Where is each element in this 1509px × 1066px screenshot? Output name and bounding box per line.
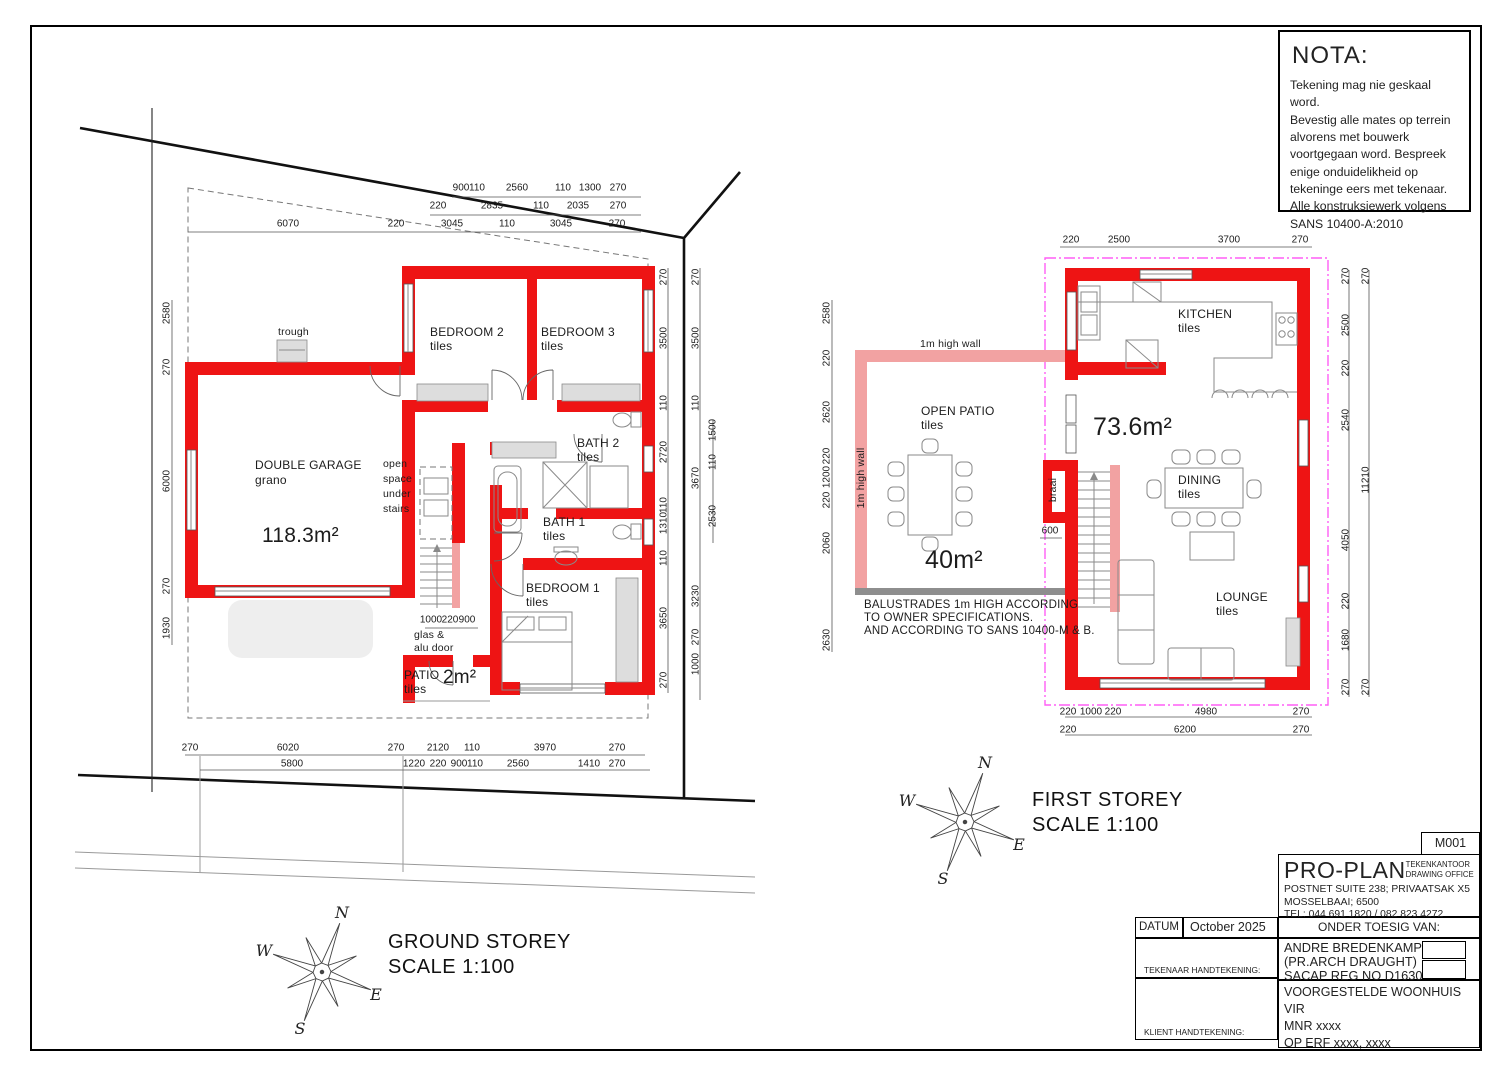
first-floor-plan xyxy=(832,247,1369,735)
dimension-label: 270 xyxy=(1292,235,1309,246)
plan-label: tiles xyxy=(1216,604,1238,618)
dimension-label: 270 xyxy=(1341,268,1352,285)
plan-label: tiles xyxy=(526,595,548,609)
compass-s: S xyxy=(295,1019,306,1038)
company-address1: POSTNET SUITE 238; PRIVAATSAK X5 xyxy=(1284,884,1474,897)
plan-label: OPEN PATIO xyxy=(921,404,995,418)
plan-label: tiles xyxy=(1178,487,1200,501)
architect-stamp-box-1 xyxy=(1422,941,1466,959)
ground-storey-title: GROUND STOREY SCALE 1:100 xyxy=(388,930,571,980)
plan-label: LOUNGE xyxy=(1216,590,1268,604)
nota-body: Tekening mag nie geskaal word.Bevestig a… xyxy=(1290,77,1459,233)
project-line2: MNR xxxx xyxy=(1284,1018,1474,1035)
vanity xyxy=(590,466,628,508)
plan-label: tiles xyxy=(430,339,452,353)
dimension-label: 270 xyxy=(1341,679,1352,696)
plan-label: BEDROOM 2 xyxy=(430,325,504,339)
first-storey-title-line2: SCALE 1:100 xyxy=(1032,813,1183,838)
client-signature-label: KLIENT HANDTEKENING: xyxy=(1144,1027,1244,1037)
dimension-label: 110 xyxy=(691,395,702,411)
plan-label: glas & xyxy=(414,629,444,641)
dimension-label: 2630 xyxy=(822,629,833,651)
plan-label: open xyxy=(383,458,407,470)
company-sub2: DRAWING OFFICE xyxy=(1406,870,1474,879)
plan-label: BEDROOM 3 xyxy=(541,325,615,339)
dimension-label: 2580 xyxy=(162,302,173,324)
client-signature-cell: KLIENT HANDTEKENING: xyxy=(1135,978,1278,1040)
dimension-label: 270 xyxy=(1293,707,1310,718)
dimension-label: 2530 xyxy=(708,505,719,527)
dimension-label: 2500 xyxy=(1341,314,1352,336)
compass-n: N xyxy=(334,903,350,922)
dimension-label: 3500 xyxy=(659,327,670,349)
dimension-label: 2035 xyxy=(567,201,589,212)
plan-label: BEDROOM 1 xyxy=(526,581,600,595)
dimension-label: 270 xyxy=(659,672,670,689)
dimension-label: 110 xyxy=(499,219,515,230)
dimension-label: 1200 xyxy=(822,466,833,488)
plan-label: TO OWNER SPECIFICATIONS. xyxy=(864,612,1033,624)
toilet-bath1 xyxy=(613,524,641,539)
dimension-label: 220 xyxy=(442,615,459,626)
dimension-label: 220 xyxy=(822,448,833,465)
architect-stamp-box-2 xyxy=(1422,960,1466,979)
compass-w: W xyxy=(256,941,274,960)
plan-label: tiles xyxy=(541,339,563,353)
dimension-label: 2560 xyxy=(506,183,528,194)
plan-label: under xyxy=(383,488,411,500)
datum-label: DATUM xyxy=(1135,917,1183,938)
dimension-label: 2580 xyxy=(822,302,833,324)
company-sub1: TEKENKANTOOR xyxy=(1406,860,1470,869)
garage-door xyxy=(215,587,390,596)
dimension-label: 2060 xyxy=(822,532,833,554)
dimension-label: 6070 xyxy=(277,219,299,230)
dimension-label: 110 xyxy=(659,550,670,566)
nota-box: NOTA: Tekening mag nie geskaal word.Beve… xyxy=(1278,30,1471,212)
plan-label: AND ACCORDING TO SANS 10400-M & B. xyxy=(864,625,1095,637)
patio-table xyxy=(888,439,972,551)
first-storey-title-line1: FIRST STOREY xyxy=(1032,788,1183,813)
dimension-label: 2620 xyxy=(822,401,833,423)
dimension-label: 220 xyxy=(1105,707,1122,718)
plan-label: 118.3m² xyxy=(262,524,339,548)
plan-label: grano xyxy=(255,473,287,487)
ground-staircase xyxy=(420,467,452,608)
hall-cupboard xyxy=(492,442,556,458)
plan-label: stairs xyxy=(383,503,409,515)
dimension-label: 110 xyxy=(533,201,549,212)
plan-label: space xyxy=(383,473,412,485)
dimension-label: 270 xyxy=(388,743,405,754)
dimension-label: 270 xyxy=(1361,679,1372,696)
compass-s: S xyxy=(938,869,949,888)
dimension-label: 2560 xyxy=(507,759,529,770)
dimension-label: 900 xyxy=(451,759,468,770)
datum-value: October 2025 xyxy=(1183,917,1278,938)
dimension-label: 1310 xyxy=(659,512,670,534)
plan-label: BATH 1 xyxy=(543,515,585,529)
drafter-signature-label: TEKENAAR HANDTEKENING: xyxy=(1144,965,1260,975)
ground-storey-title-line2: SCALE 1:100 xyxy=(388,955,571,980)
dimension-label: 220 xyxy=(1341,593,1352,610)
plan-label: DOUBLE GARAGE xyxy=(255,458,362,472)
dimension-label: 110 xyxy=(464,743,480,754)
dimension-label: 6000 xyxy=(162,470,173,492)
plan-label: alu door xyxy=(414,642,454,654)
ground-storey-title-line1: GROUND STOREY xyxy=(388,930,571,955)
dimension-label: 5800 xyxy=(281,759,303,770)
compass-e: E xyxy=(369,985,382,1004)
plan-label: 40m² xyxy=(925,546,983,575)
dimension-label: 110 xyxy=(467,759,483,770)
plan-label: 73.6m² xyxy=(1093,413,1172,442)
dimension-label: 3500 xyxy=(691,327,702,349)
dimension-label: 110 xyxy=(555,183,571,194)
car-outline xyxy=(228,600,373,658)
dimension-label: 220 xyxy=(430,201,447,212)
compass-n: N xyxy=(977,753,993,772)
plan-label: tiles xyxy=(404,682,426,696)
dimension-label: 1300 xyxy=(579,183,601,194)
nota-title: NOTA: xyxy=(1292,42,1459,70)
company-address2: MOSSELBAAI; 6500 xyxy=(1284,897,1474,910)
dimension-label: 3650 xyxy=(659,607,670,629)
dimension-label: 110 xyxy=(469,183,485,194)
dimension-label: 220 xyxy=(822,350,833,367)
dimension-label: 270 xyxy=(691,269,702,286)
dimension-label: 270 xyxy=(162,578,173,595)
plan-label: tiles xyxy=(577,450,599,464)
nota-line: Bevestig alle mates op terrein xyxy=(1290,112,1459,129)
trough xyxy=(277,340,307,362)
dimension-label: 270 xyxy=(182,743,199,754)
dimension-label: 2835 xyxy=(481,201,503,212)
nota-line: Tekening mag nie geskaal word. xyxy=(1290,77,1459,112)
bed xyxy=(502,612,572,690)
dimension-label: 11210 xyxy=(1361,466,1372,493)
nota-line: SANS 10400-A:2010 xyxy=(1290,216,1459,233)
dimension-label: 3970 xyxy=(534,743,556,754)
dimension-label: 1220 xyxy=(403,759,425,770)
dimension-label: 220 xyxy=(388,219,405,230)
dimension-label: 6020 xyxy=(277,743,299,754)
dimension-label: 270 xyxy=(1293,725,1310,736)
dimension-label: 110 xyxy=(659,497,670,513)
dimension-label: 1000 xyxy=(1080,707,1102,718)
project-line3: OP ERF xxxx, xxxx xyxy=(1284,1035,1474,1052)
balustrade xyxy=(855,588,1067,595)
dimension-label: 270 xyxy=(691,629,702,646)
dimension-label: 220 xyxy=(1063,235,1080,246)
dimension-label: 220 xyxy=(1060,725,1077,736)
dimension-label: 3045 xyxy=(441,219,463,230)
dimension-label: 6200 xyxy=(1174,725,1196,736)
plan-label: BALUSTRADES 1m HIGH ACCORDING xyxy=(864,599,1078,611)
first-staircase xyxy=(1078,465,1120,612)
lounge-furniture xyxy=(1118,532,1300,680)
company-name: PRO-PLAN xyxy=(1284,857,1406,884)
dimension-label: 3230 xyxy=(691,585,702,607)
dimension-label: 3045 xyxy=(550,219,572,230)
dimension-label: 600 xyxy=(1042,526,1059,537)
supervision-label: ONDER TOESIG VAN: xyxy=(1278,917,1480,938)
compass-first: N W E S xyxy=(898,753,1031,889)
dimension-label: 900 xyxy=(453,183,470,194)
dimension-label: 270 xyxy=(610,201,627,212)
dimension-label: 220 xyxy=(430,759,447,770)
dimension-label: 2540 xyxy=(1341,409,1352,431)
cupboard-bedroom3 xyxy=(562,384,640,401)
plan-label: BATH 2 xyxy=(577,436,619,450)
nota-line: alvorens met bouwerk xyxy=(1290,129,1459,146)
shower xyxy=(543,462,587,508)
dimension-label: 270 xyxy=(610,183,627,194)
plan-label: tiles xyxy=(1178,321,1200,335)
dimension-label: 4980 xyxy=(1195,707,1217,718)
plan-label: tiles xyxy=(543,529,565,543)
plan-label: trough xyxy=(278,326,309,338)
dimension-label: 1000 xyxy=(691,653,702,675)
dimension-label: 1930 xyxy=(162,617,173,639)
dimension-label: 270 xyxy=(162,359,173,376)
plan-label: KITCHEN xyxy=(1178,307,1232,321)
dimension-label: 1500 xyxy=(708,419,719,441)
compass-w: W xyxy=(899,791,917,810)
plan-label: DINING xyxy=(1178,473,1221,487)
dimension-label: 1680 xyxy=(1341,629,1352,651)
compass-e: E xyxy=(1012,835,1025,854)
first-storey-title: FIRST STOREY SCALE 1:100 xyxy=(1032,788,1183,838)
nota-line: tekeninge eers met tekenaar. xyxy=(1290,181,1459,198)
dimension-label: 2120 xyxy=(427,743,449,754)
nota-line: Alle konstruksiewerk volgens xyxy=(1290,198,1459,215)
kitchen-fittings xyxy=(1078,282,1297,398)
dimension-label: 270 xyxy=(659,269,670,286)
project-block: VOORGESTELDE WOONHUIS VIR MNR xxxx OP ER… xyxy=(1278,980,1480,1048)
dimension-label: 270 xyxy=(609,219,626,230)
nota-line: enige onduidelikheid op xyxy=(1290,164,1459,181)
dimension-label: 2720 xyxy=(659,441,670,463)
wardrobe-bedroom1 xyxy=(616,578,638,682)
dimension-label: 220 xyxy=(1341,360,1352,377)
dimension-label: 270 xyxy=(609,759,626,770)
compass-ground: N W E S xyxy=(255,903,388,1039)
dimension-label: 1000 xyxy=(420,615,442,626)
dimension-label: 270 xyxy=(1361,268,1372,285)
sheet-number: M001 xyxy=(1421,832,1480,855)
nota-line: voortgegaan word. Bespreek xyxy=(1290,146,1459,163)
drafter-signature-cell: TEKENAAR HANDTEKENING: xyxy=(1135,938,1278,978)
dimension-label: 3700 xyxy=(1218,235,1240,246)
dimension-label: 2500 xyxy=(1108,235,1130,246)
dimension-label: 3670 xyxy=(691,467,702,489)
plan-label: tiles xyxy=(921,418,943,432)
dimension-label: 1410 xyxy=(578,759,600,770)
company-block: PRO-PLANTEKENKANTOORDRAWING OFFICE POSTN… xyxy=(1278,854,1480,917)
dimension-label: 4050 xyxy=(1341,529,1352,551)
project-line1: VOORGESTELDE WOONHUIS VIR xyxy=(1284,984,1474,1018)
plan-label: 2m² xyxy=(443,667,476,689)
dimension-label: 220 xyxy=(1060,707,1077,718)
dimension-label: 220 xyxy=(822,492,833,509)
plan-label: PATIO xyxy=(404,668,439,682)
toilet-bath2 xyxy=(613,412,641,427)
plan-label: 1m high wall xyxy=(855,448,867,509)
dimension-label: 900 xyxy=(459,615,476,626)
cupboard-bedroom2 xyxy=(417,384,488,401)
dimension-label: 110 xyxy=(708,454,719,470)
dimension-label: 110 xyxy=(659,395,670,411)
plan-label: braai xyxy=(1047,478,1059,502)
plan-label: 1m high wall xyxy=(920,338,981,350)
dimension-label: 270 xyxy=(609,743,626,754)
dining-table xyxy=(1147,450,1261,526)
